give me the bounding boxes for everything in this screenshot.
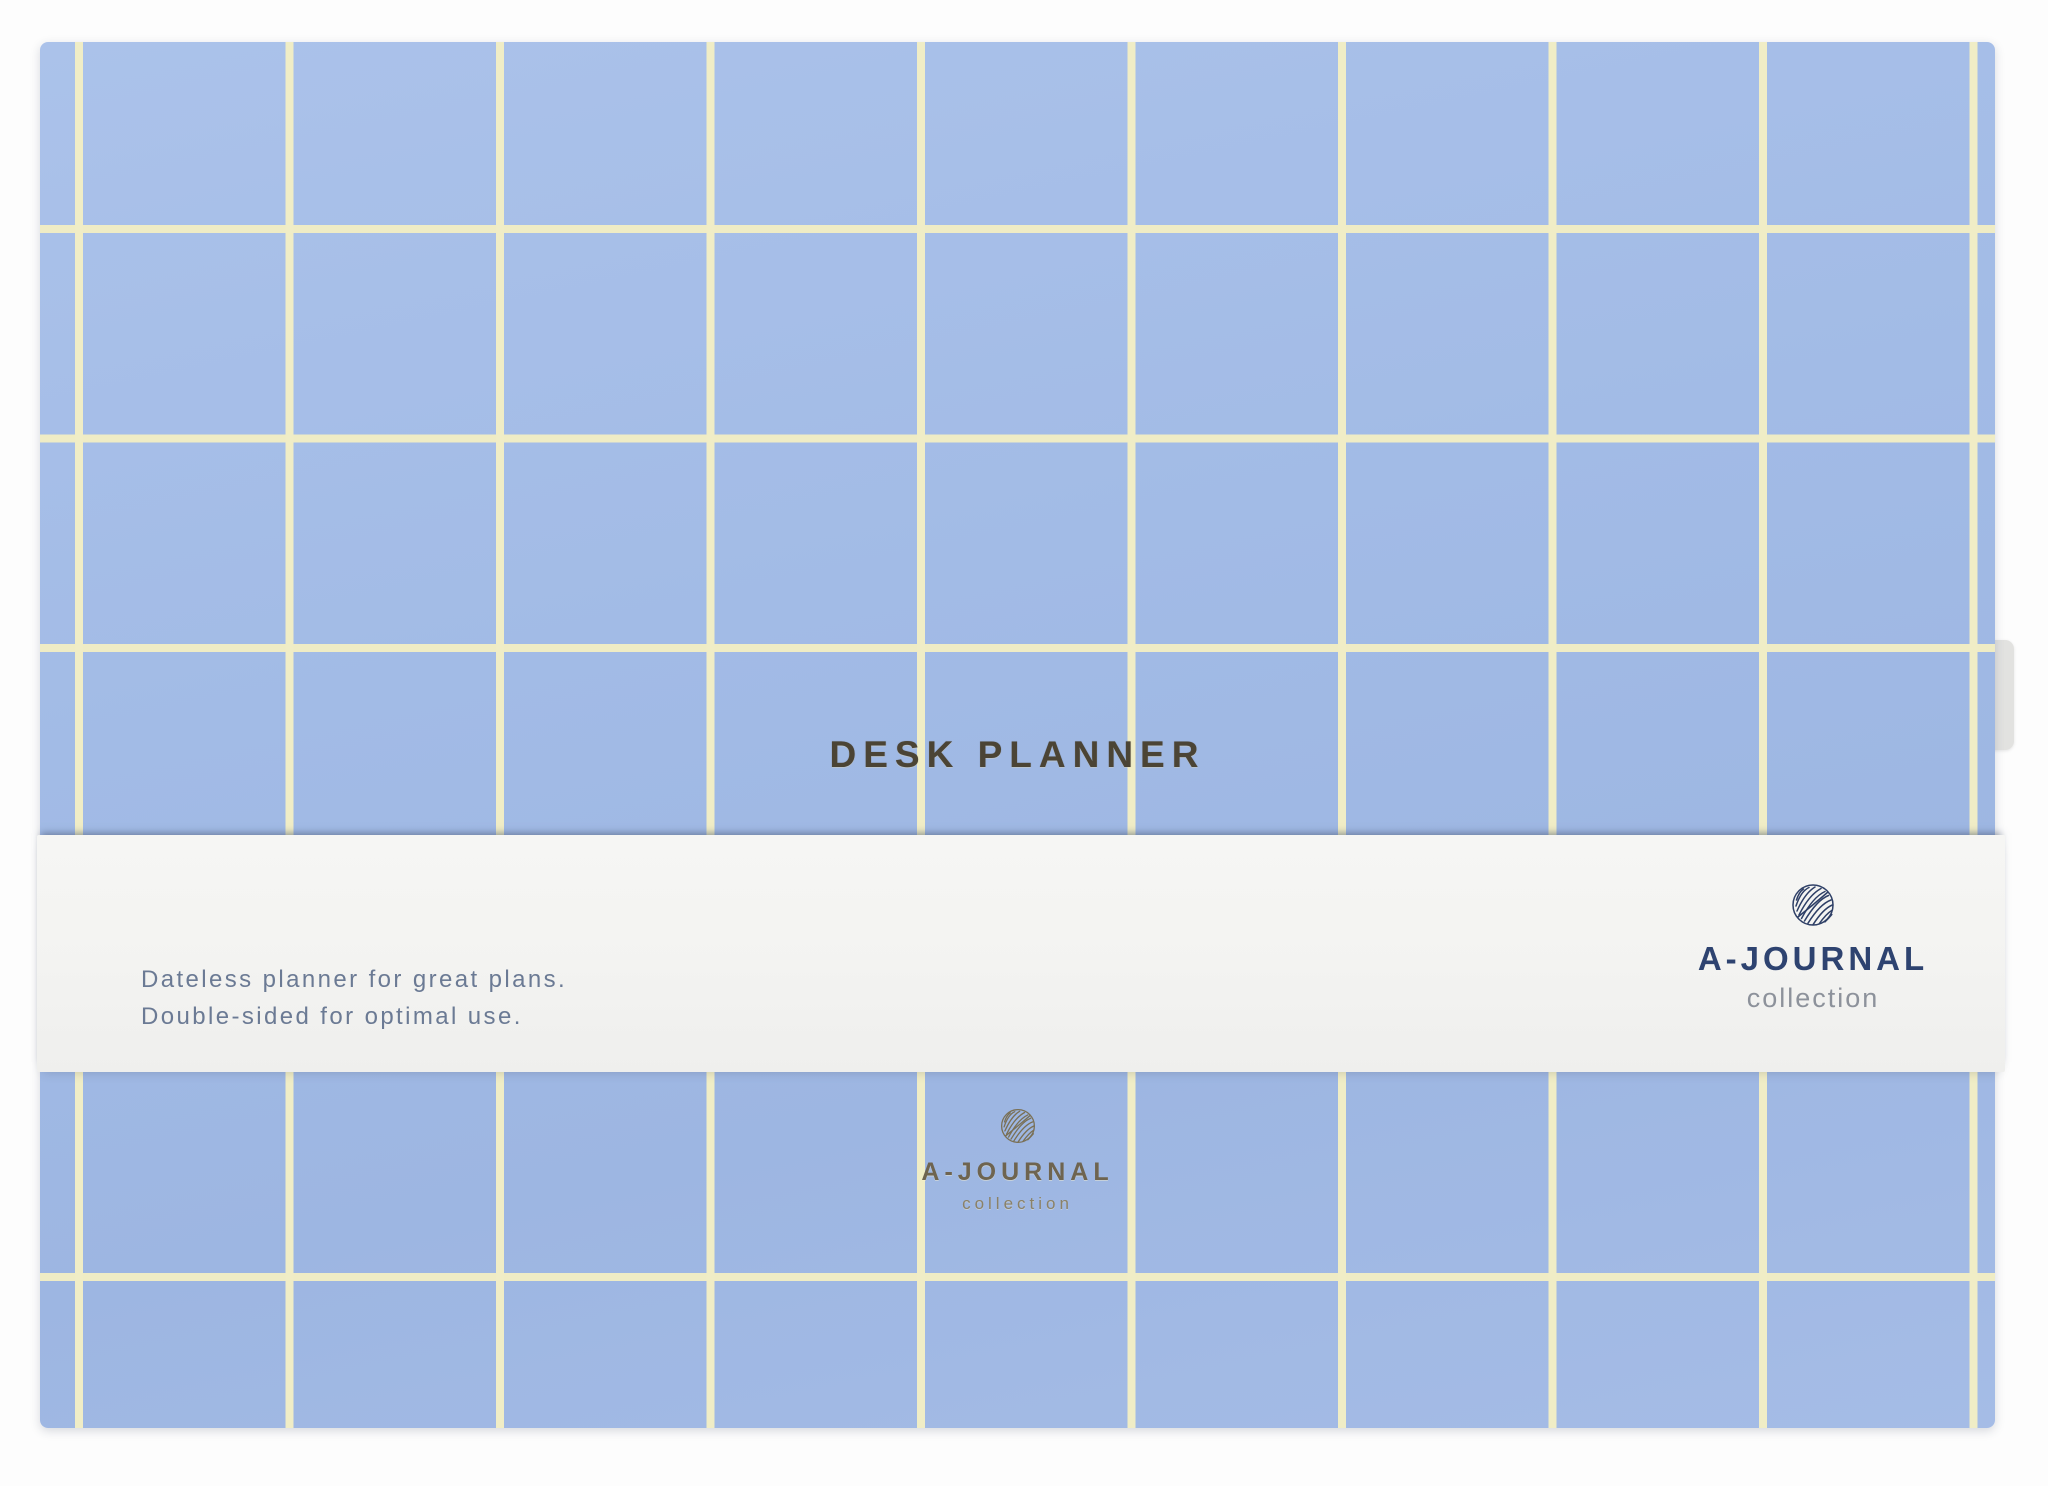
cover-title: DESK PLANNER xyxy=(40,734,1995,776)
band-brand-logo: A-JOURNAL collection xyxy=(1653,883,1973,1014)
leaf-icon xyxy=(1791,883,1835,927)
planner-cover: DESK PLANNER A-JOURNAL collection xyxy=(40,42,1995,1428)
band-tagline: Dateless planner for great plans.Double-… xyxy=(141,961,567,1035)
leaf-icon xyxy=(1000,1108,1036,1144)
cover-brand-logo: A-JOURNAL collection xyxy=(40,1108,1995,1214)
band-tagline-line2: Double-sided for optimal use. xyxy=(141,1003,523,1030)
cover-brand-name: A-JOURNAL xyxy=(921,1158,1113,1187)
band-tagline-line1: Dateless planner for great plans. xyxy=(141,966,567,993)
band-brand-sub: collection xyxy=(1747,983,1880,1014)
cover-brand-sub: collection xyxy=(962,1194,1073,1214)
product-photo: DESK PLANNER A-JOURNAL collection Datele… xyxy=(0,0,2048,1486)
belly-band: Dateless planner for great plans.Double-… xyxy=(37,835,2005,1072)
band-brand-name: A-JOURNAL xyxy=(1698,940,1928,978)
